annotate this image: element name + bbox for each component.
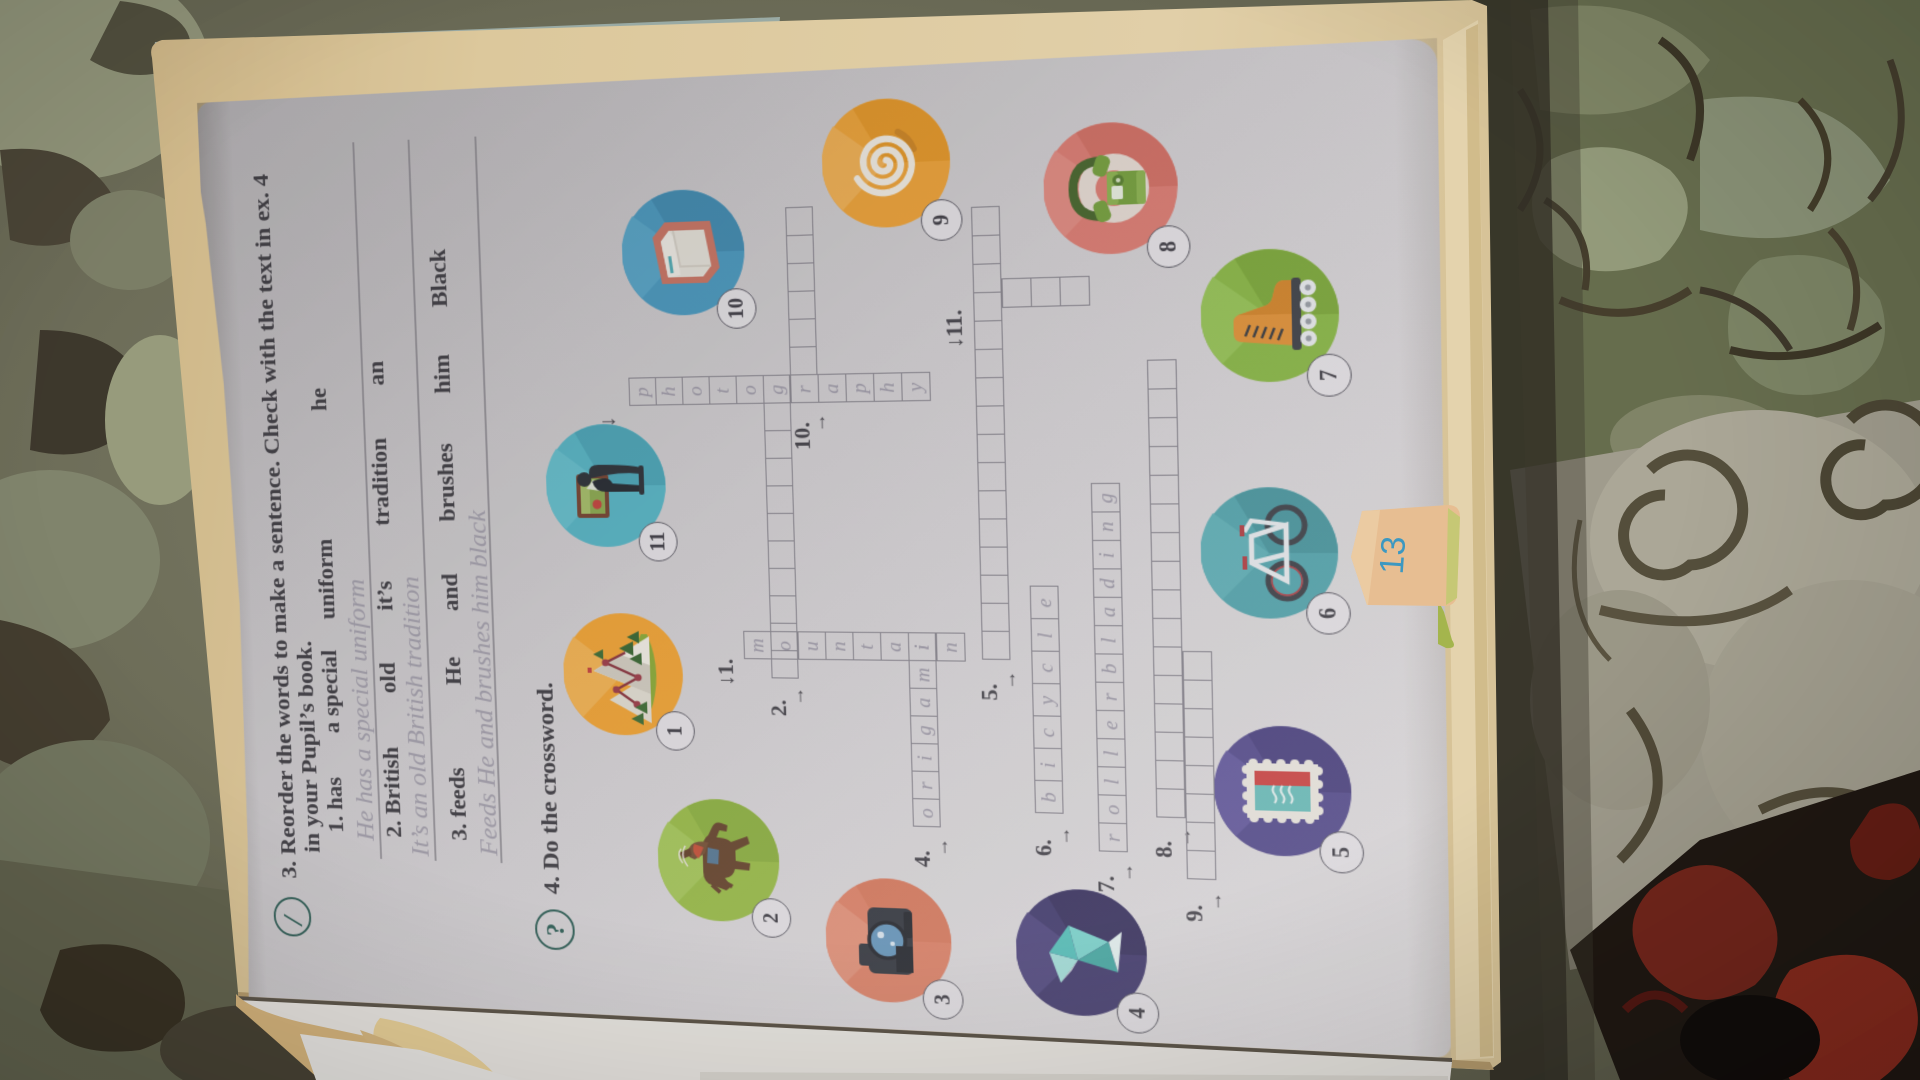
svg-text:13: 13 <box>1373 535 1414 575</box>
